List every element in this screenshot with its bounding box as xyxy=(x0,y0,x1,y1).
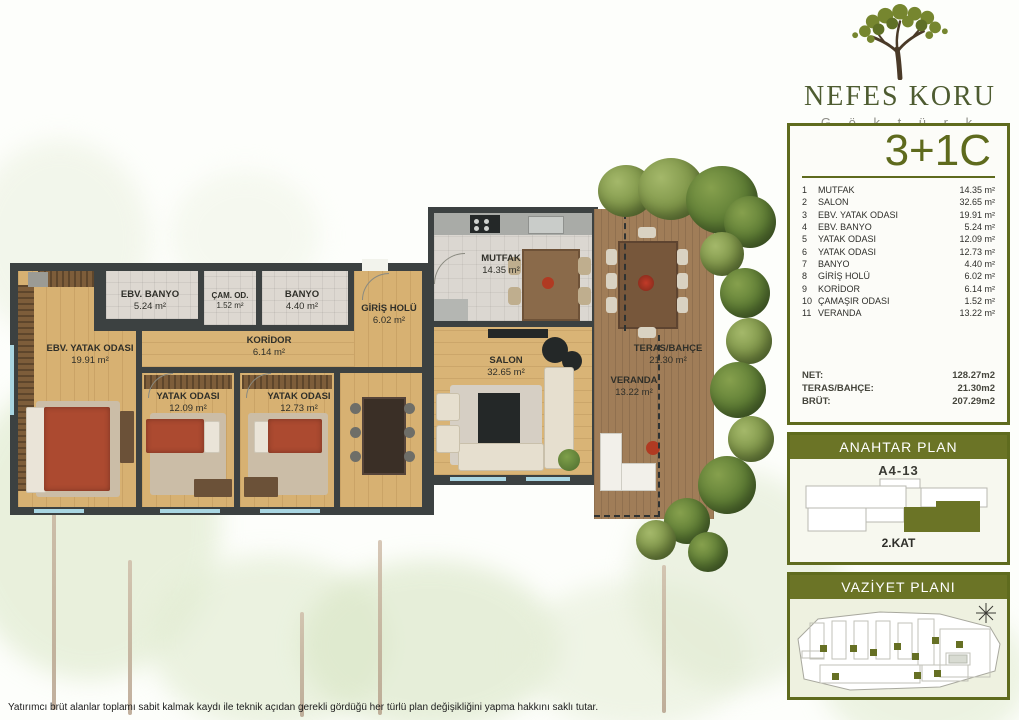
single-bed xyxy=(268,419,322,453)
room-number: 11 xyxy=(802,307,818,319)
shrub xyxy=(698,456,756,514)
terrace-chair xyxy=(638,327,656,338)
stove-burner xyxy=(484,226,489,231)
dining-chair xyxy=(404,451,415,462)
dining-chair xyxy=(350,403,361,414)
flower-pot xyxy=(542,277,554,289)
floorplan-poster: EBV. YATAK ODASI19.91 m² EBV. BANYO5.24 … xyxy=(0,0,1019,720)
armchair xyxy=(436,393,460,421)
room-name: EBV. BANYO xyxy=(818,221,964,233)
room-number: 10 xyxy=(802,295,818,307)
label-mutfak: MUTFAK14.35 m² xyxy=(446,253,556,278)
desk xyxy=(194,479,232,497)
kitchen-sink xyxy=(528,216,564,234)
room-area: 4.40 m² xyxy=(964,258,995,270)
room-number: 4 xyxy=(802,221,818,233)
label-cam-od: ÇAM. OD.1.52 m² xyxy=(206,291,254,312)
label-giris-holu: GİRİŞ HOLÜ6.02 m² xyxy=(354,303,424,328)
terrace-chair xyxy=(677,249,688,265)
shrub xyxy=(728,416,774,462)
room-list-row: 2 SALON 32.65 m² xyxy=(802,196,995,208)
label-ebv-yatak-odasi: EBV. YATAK ODASI19.91 m² xyxy=(35,343,145,368)
room-area: 6.02 m² xyxy=(964,270,995,282)
room-area: 12.09 m² xyxy=(959,233,995,245)
room-list-row: 9 KORİDOR 6.14 m² xyxy=(802,283,995,295)
site-plan-drawing xyxy=(790,599,1007,696)
room-number: 7 xyxy=(802,258,818,270)
window xyxy=(526,477,570,481)
label-koridor: KORİDOR6.14 m² xyxy=(224,335,314,360)
terrace-chair xyxy=(606,273,617,289)
room-name: YATAK ODASI xyxy=(818,246,959,258)
compass-icon xyxy=(976,603,996,623)
disclaimer-text: Yatırımcı brüt alanlar toplamı sabit kal… xyxy=(8,702,598,713)
site-plan-panel: VAZİYET PLANI xyxy=(787,572,1010,700)
window xyxy=(450,477,506,481)
brand-logo: NEFES KORU G ö k t ü r k xyxy=(795,2,1005,130)
room-name: ÇAMAŞIR ODASI xyxy=(818,295,964,307)
double-bed xyxy=(44,407,110,491)
kitchen-chair xyxy=(578,257,591,275)
total-row: NET: 128.27m2 xyxy=(802,369,995,382)
room-name: VERANDA xyxy=(818,307,959,319)
total-label: TERAS/BAHÇE: xyxy=(802,382,957,395)
room-area: 32.65 m² xyxy=(959,196,995,208)
room-area: 12.73 m² xyxy=(959,246,995,258)
stove-burner xyxy=(484,219,489,224)
room-area: 14.35 m² xyxy=(959,184,995,196)
unit-info-card: 3+1C 1 MUTFAK 14.35 m² 2 SALON 32.65 m² … xyxy=(787,123,1010,425)
unit-type-title: 3+1C xyxy=(790,126,1007,174)
kitchen-chair xyxy=(508,287,521,305)
room-number: 2 xyxy=(802,196,818,208)
label-teras-bahce: TERAS/BAHÇE21.30 m² xyxy=(622,343,714,368)
label-salon: SALON32.65 m² xyxy=(456,355,556,380)
terrace-chair xyxy=(606,297,617,313)
brand-name: NEFES KORU xyxy=(795,81,1005,113)
total-row: TERAS/BAHÇE: 21.30m2 xyxy=(802,382,995,395)
room-area: 1.52 m² xyxy=(964,295,995,307)
room-name: EBV. YATAK ODASI xyxy=(818,209,959,221)
total-label: BRÜT: xyxy=(802,395,952,408)
room-area: 13.22 m² xyxy=(959,307,995,319)
total-value: 21.30m2 xyxy=(957,382,995,395)
tree-trunk xyxy=(128,560,132,715)
room-name: GİRİŞ HOLÜ xyxy=(818,270,964,282)
total-row: BRÜT: 207.29m2 xyxy=(802,395,995,408)
area-totals: NET: 128.27m2 TERAS/BAHÇE: 21.30m2 BRÜT:… xyxy=(802,369,995,408)
room-area: 19.91 m² xyxy=(959,209,995,221)
room-list-row: 5 YATAK ODASI 12.09 m² xyxy=(802,233,995,245)
terrace-chair xyxy=(638,227,656,238)
key-plan-drawing xyxy=(790,478,1007,534)
shrub xyxy=(720,268,770,318)
veranda-sofa xyxy=(600,433,622,491)
key-plan-panel: ANAHTAR PLAN A4-13 2.KAT xyxy=(787,432,1010,565)
dining-chair xyxy=(404,427,415,438)
tree-icon xyxy=(840,2,960,80)
room-list: 1 MUTFAK 14.35 m² 2 SALON 32.65 m² 3 EBV… xyxy=(790,184,1007,319)
room-list-row: 6 YATAK ODASI 12.73 m² xyxy=(802,246,995,258)
room-name: BANYO xyxy=(818,258,964,270)
dining-chair xyxy=(350,427,361,438)
dining-chair xyxy=(404,403,415,414)
single-bed xyxy=(146,419,204,453)
bed-pillows xyxy=(26,407,46,493)
room-number: 8 xyxy=(802,270,818,282)
entrance-opening xyxy=(362,259,388,271)
room-number: 9 xyxy=(802,283,818,295)
terrace-chair xyxy=(677,297,688,313)
room-area: 5.24 m² xyxy=(964,221,995,233)
room-name: YATAK ODASI xyxy=(818,233,959,245)
label-ebv-banyo: EBV. BANYO5.24 m² xyxy=(106,289,194,314)
label-veranda: VERANDA13.22 m² xyxy=(596,375,672,400)
room-name: SALON xyxy=(818,196,959,208)
shrub xyxy=(688,532,728,572)
terrace-chair xyxy=(606,249,617,265)
room-number: 6 xyxy=(802,246,818,258)
window xyxy=(10,345,14,415)
room-name: KORİDOR xyxy=(818,283,964,295)
ac-shaft xyxy=(28,272,48,287)
room-number: 1 xyxy=(802,184,818,196)
dining-chair xyxy=(350,451,361,462)
stove-burner xyxy=(474,226,479,231)
watercolor-blob xyxy=(300,560,560,720)
key-plan-unit-label: A4-13 xyxy=(790,463,1007,478)
room-name: MUTFAK xyxy=(818,184,959,196)
flower-centerpiece xyxy=(638,275,654,291)
room-list-row: 7 BANYO 4.40 m² xyxy=(802,258,995,270)
potted-plant xyxy=(558,449,580,471)
floor-plan: EBV. YATAK ODASI19.91 m² EBV. BANYO5.24 … xyxy=(10,195,765,570)
window xyxy=(34,509,84,513)
deck-dashed-boundary xyxy=(594,515,660,517)
tv-console xyxy=(488,329,548,338)
shrub xyxy=(726,318,772,364)
room-list-row: 10 ÇAMAŞIR ODASI 1.52 m² xyxy=(802,295,995,307)
room-area: 6.14 m² xyxy=(964,283,995,295)
room-list-row: 11 VERANDA 13.22 m² xyxy=(802,307,995,319)
key-plan-floor-label: 2.KAT xyxy=(790,536,1007,550)
desk xyxy=(120,411,134,463)
stove-burner xyxy=(474,219,479,224)
room-number: 3 xyxy=(802,209,818,221)
room-number: 5 xyxy=(802,233,818,245)
window xyxy=(160,509,220,513)
site-plan-header: VAZİYET PLANI xyxy=(790,575,1007,599)
label-yatak-odasi-1: YATAK ODASI12.09 m² xyxy=(144,391,232,416)
kitchen-cabinet xyxy=(434,299,468,321)
terrace-chair xyxy=(677,273,688,289)
room-list-row: 8 GİRİŞ HOLÜ 6.02 m² xyxy=(802,270,995,282)
total-value: 128.27m2 xyxy=(952,369,995,382)
total-label: NET: xyxy=(802,369,952,382)
room-list-row: 3 EBV. YATAK ODASI 19.91 m² xyxy=(802,209,995,221)
label-banyo: BANYO4.40 m² xyxy=(272,289,332,314)
kitchen-chair xyxy=(578,287,591,305)
armchair xyxy=(436,425,460,453)
tree-trunk xyxy=(662,565,666,713)
teras-dashed-boundary xyxy=(624,213,626,331)
shrub xyxy=(636,520,676,560)
room-list-row: 1 MUTFAK 14.35 m² xyxy=(802,184,995,196)
window xyxy=(260,509,320,513)
title-rule xyxy=(802,176,995,178)
desk xyxy=(244,477,278,497)
kitchen-counter xyxy=(434,213,592,235)
sofa-bottom xyxy=(458,443,544,471)
room-list-row: 4 EBV. BANYO 5.24 m² xyxy=(802,221,995,233)
label-yatak-odasi-2: YATAK ODASI12.73 m² xyxy=(255,391,343,416)
bed-pillow xyxy=(204,421,220,453)
dining-table xyxy=(362,397,406,475)
key-plan-header: ANAHTAR PLAN xyxy=(790,435,1007,459)
total-value: 207.29m2 xyxy=(952,395,995,408)
shrub xyxy=(710,362,766,418)
